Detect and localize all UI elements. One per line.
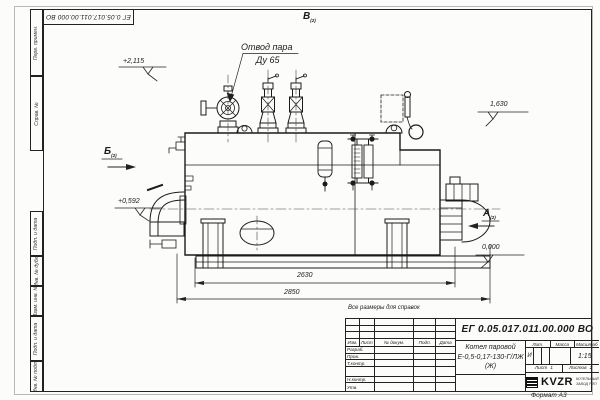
lit-value: И (526, 348, 534, 364)
change-row (346, 319, 455, 326)
lit-mass-scale-header: Лит. Масса Масштаб (526, 341, 599, 348)
view-label-a: А(2) (483, 208, 496, 220)
sig-row-nkontr: Н.контр. (346, 377, 455, 384)
kvzr-logo-text: KVZR (541, 376, 573, 388)
elevation-0592: +0,592 (118, 198, 140, 205)
elevation-2115: +2,115 (123, 58, 144, 65)
water-level-gauge (318, 135, 378, 191)
elevation-0000: 0,000 (482, 244, 500, 251)
elevation-1630: 1,630 (490, 101, 508, 108)
view-label-b: Б(2) (104, 146, 117, 158)
steam-valve (201, 86, 239, 133)
title-block-doc-number: ЕГ 0.05.017.011.00.000 ВО (456, 319, 599, 341)
dim-2850: 2850 (284, 289, 300, 296)
lit-mass-scale-values: И 1:15 (526, 348, 599, 365)
sig-row-prov: Пров. (346, 354, 455, 361)
sig-row-tkontr: Т.контр. (346, 360, 455, 367)
view-label-v: В(2) (303, 11, 316, 23)
sig-row-razrab: Разраб. (346, 347, 455, 354)
steam-outlet-note-line1: Отвод пара (241, 42, 292, 52)
sheet-numbers: Лист1 Листов2 (526, 365, 599, 373)
company-logo: KVZR КОТЕЛЬНЫЙ ЗАВОД РЭП (526, 373, 599, 391)
kvzr-logo-icon (526, 377, 538, 388)
front-valve (148, 137, 193, 248)
change-header-row: Изм. Лист № докум. Подп. Дата (346, 339, 455, 347)
dim-2630: 2630 (297, 272, 313, 279)
drawing-sheet: ЕГ 0.05.017.011.00.000 ВО Перв. примен. … (0, 0, 600, 400)
product-name: Котел паровой Е-0,5-0,17-130-Г/ЛЖ (Ж) (456, 341, 525, 375)
steam-outlet-note-line2: Ду 65 (256, 55, 279, 65)
lit-cell-2 (534, 348, 542, 364)
scale-value: 1:15 (571, 348, 599, 364)
lifting-lugs (237, 92, 423, 140)
elevation-marks (115, 67, 528, 268)
leader-arrow (228, 94, 234, 102)
reference-note: Все размеры для справок (348, 305, 420, 311)
sig-row-utv: Утв. (346, 383, 455, 391)
lit-cell-3 (542, 348, 550, 364)
title-block-main: ЕГ 0.05.017.011.00.000 ВО Котел паровой … (456, 319, 599, 391)
dimension-arrows (177, 281, 490, 301)
org-name: КОТЕЛЬНЫЙ ЗАВОД РЭП (576, 377, 599, 386)
format-note: Формат А3 (531, 392, 567, 399)
change-row (346, 326, 455, 333)
mass-value (550, 348, 571, 364)
empty-cell (456, 375, 525, 391)
change-row (346, 332, 455, 339)
sig-row-blank (346, 367, 455, 377)
dimension-lines (177, 245, 490, 303)
title-block: Изм. Лист № докум. Подп. Дата Разраб. Пр… (345, 318, 592, 392)
title-block-signatures: Изм. Лист № докум. Подп. Дата Разраб. Пр… (346, 319, 456, 391)
boiler-supports (196, 219, 490, 268)
